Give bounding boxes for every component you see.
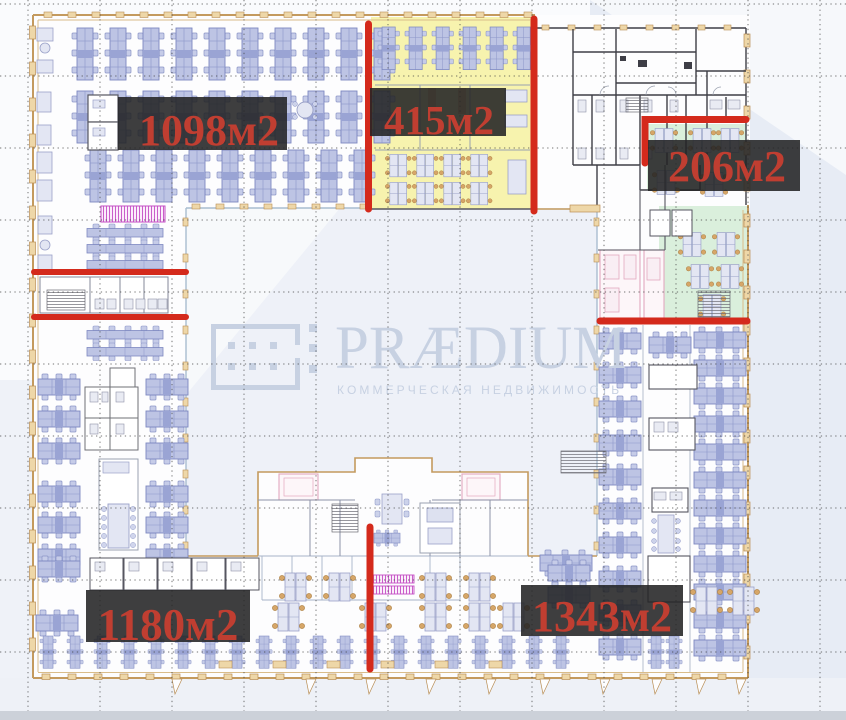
svg-text:КОММЕРЧЕСКАЯ НЕДВИЖИМОСТЬ: КОММЕРЧЕСКАЯ НЕДВИЖИМОСТЬ	[337, 383, 622, 397]
svg-text:1098м2: 1098м2	[139, 106, 279, 155]
svg-text:1343м2: 1343м2	[532, 592, 672, 641]
svg-text:206м2: 206м2	[668, 142, 786, 191]
svg-text:415м2: 415м2	[384, 97, 494, 143]
svg-text:PRÆDIUM: PRÆDIUM	[335, 315, 627, 382]
svg-text:1180м2: 1180м2	[98, 600, 239, 650]
